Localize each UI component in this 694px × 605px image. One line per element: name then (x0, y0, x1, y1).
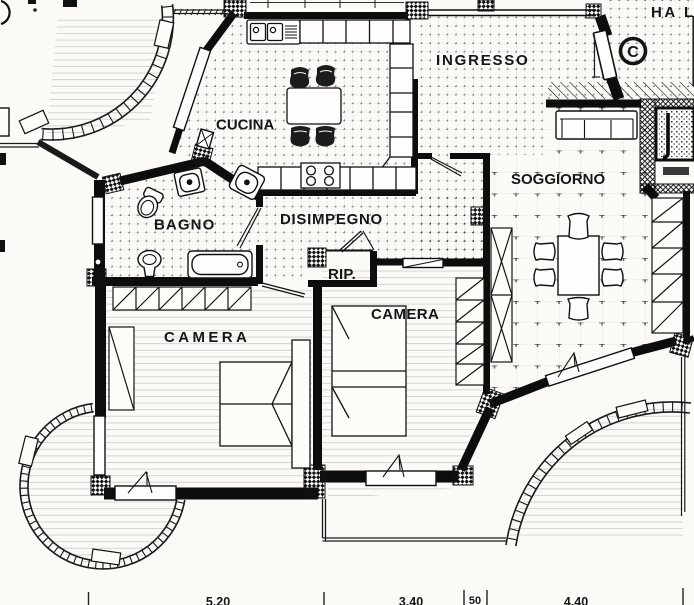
svg-text:INGRESSO: INGRESSO (436, 52, 530, 69)
svg-text:5.20: 5.20 (206, 595, 230, 605)
svg-text:DISIMPEGNO: DISIMPEGNO (280, 211, 383, 228)
svg-text:CAMERA: CAMERA (164, 329, 250, 346)
svg-text:HA: HA (651, 4, 678, 21)
svg-text:4.40: 4.40 (564, 595, 588, 605)
svg-text:SOGGIORNO: SOGGIORNO (511, 171, 606, 188)
svg-text:50: 50 (469, 595, 481, 605)
svg-text:RIP.: RIP. (328, 266, 356, 283)
svg-text:3.40: 3.40 (399, 595, 423, 605)
svg-text:CUCINA: CUCINA (216, 117, 274, 134)
svg-text:L: L (684, 4, 693, 21)
svg-text:BAGNO: BAGNO (154, 217, 215, 234)
svg-text:CAMERA: CAMERA (371, 306, 439, 323)
svg-text:C: C (627, 44, 639, 61)
